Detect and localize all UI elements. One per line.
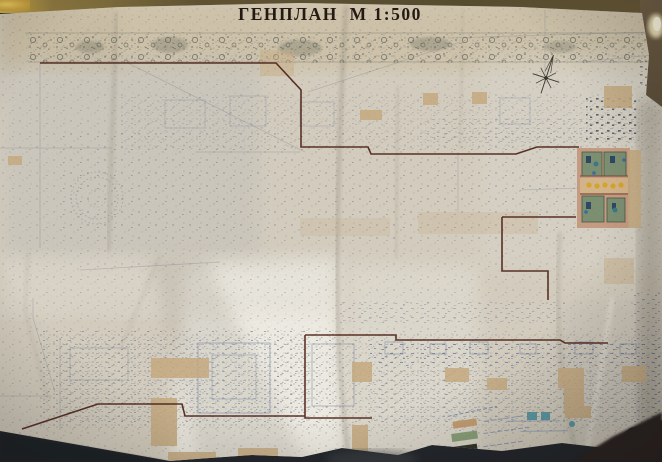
map-title: ГЕНПЛАН М 1:500 [238, 4, 422, 24]
photo-of-genplan: ГЕНПЛАН М 1:500 [0, 0, 662, 462]
grain-overlay [0, 0, 662, 462]
glare-spot [648, 14, 662, 38]
genplan-sheet-photo: ГЕНПЛАН М 1:500 [0, 0, 662, 462]
legend-swatch-blue-oval [451, 454, 466, 462]
